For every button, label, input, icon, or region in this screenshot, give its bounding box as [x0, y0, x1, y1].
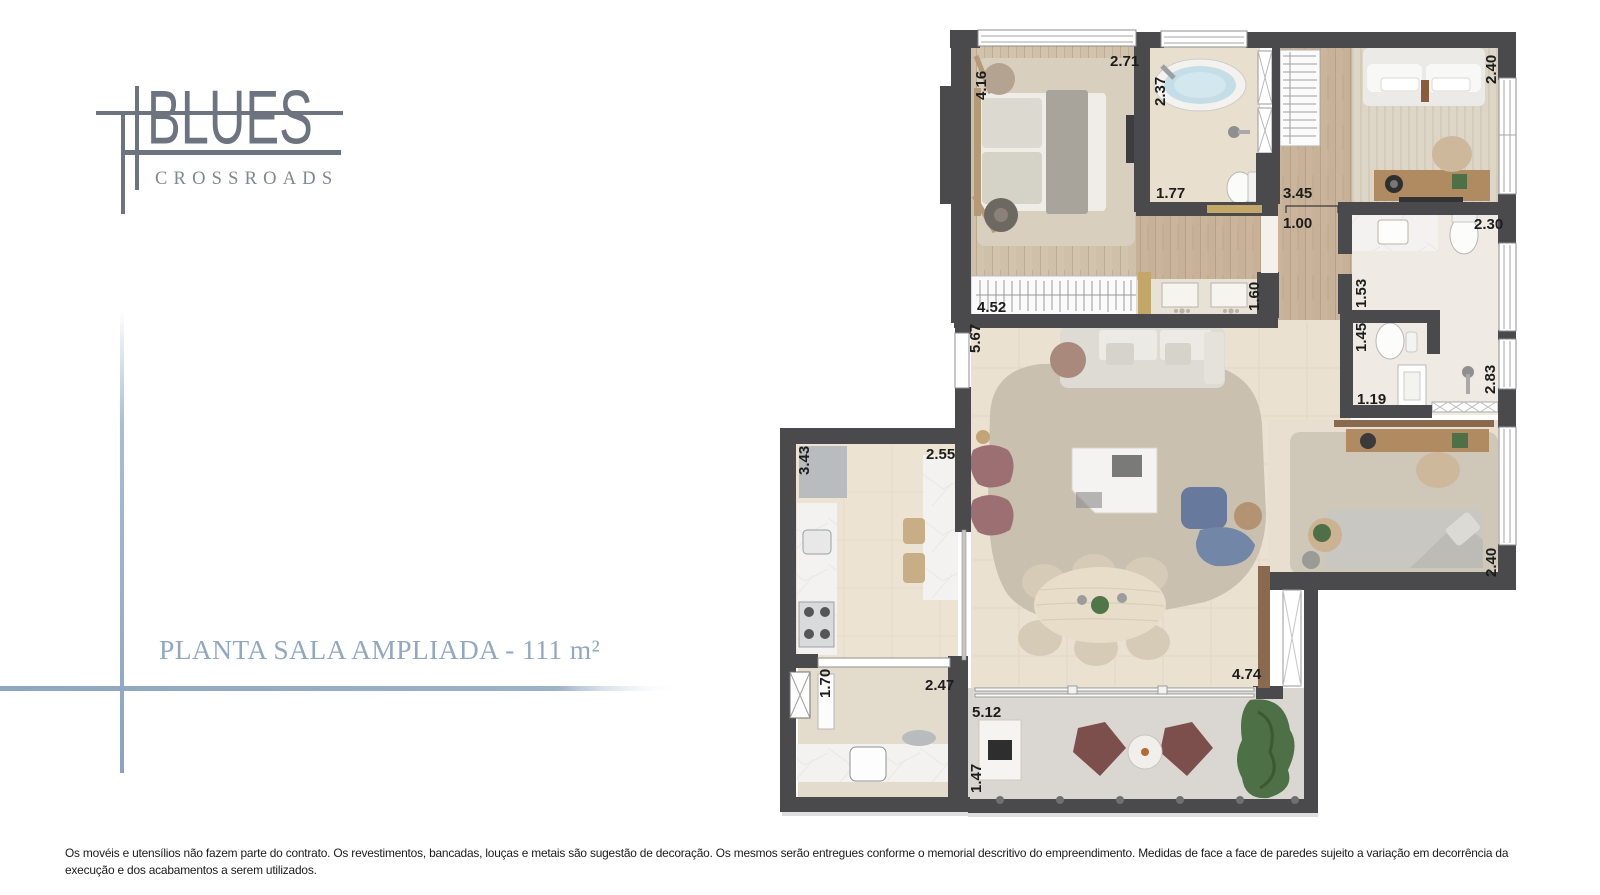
svg-text:3.45: 3.45	[1283, 185, 1312, 202]
svg-text:4.16: 4.16	[973, 71, 990, 100]
svg-text:2.47: 2.47	[925, 677, 954, 694]
svg-text:2.71: 2.71	[1110, 53, 1139, 70]
svg-text:5.12: 5.12	[972, 704, 1001, 721]
svg-text:1.19: 1.19	[1357, 391, 1386, 408]
svg-text:2.30: 2.30	[1474, 216, 1503, 233]
svg-text:1.77: 1.77	[1156, 185, 1185, 202]
svg-text:2.55: 2.55	[926, 446, 955, 463]
svg-text:4.52: 4.52	[977, 299, 1006, 316]
svg-text:2.40: 2.40	[1483, 548, 1500, 577]
svg-text:2.37: 2.37	[1152, 77, 1169, 106]
svg-text:1.53: 1.53	[1353, 279, 1370, 308]
svg-text:1.00: 1.00	[1283, 215, 1312, 232]
svg-text:2.83: 2.83	[1482, 365, 1499, 394]
svg-text:1.60: 1.60	[1246, 282, 1263, 311]
svg-text:2.40: 2.40	[1483, 55, 1500, 84]
svg-text:4.74: 4.74	[1232, 666, 1262, 683]
svg-text:5.67: 5.67	[967, 324, 984, 353]
svg-text:1.47: 1.47	[968, 764, 985, 793]
svg-text:3.43: 3.43	[796, 446, 813, 475]
svg-text:1.45: 1.45	[1353, 323, 1370, 352]
svg-text:1.70: 1.70	[817, 669, 834, 698]
